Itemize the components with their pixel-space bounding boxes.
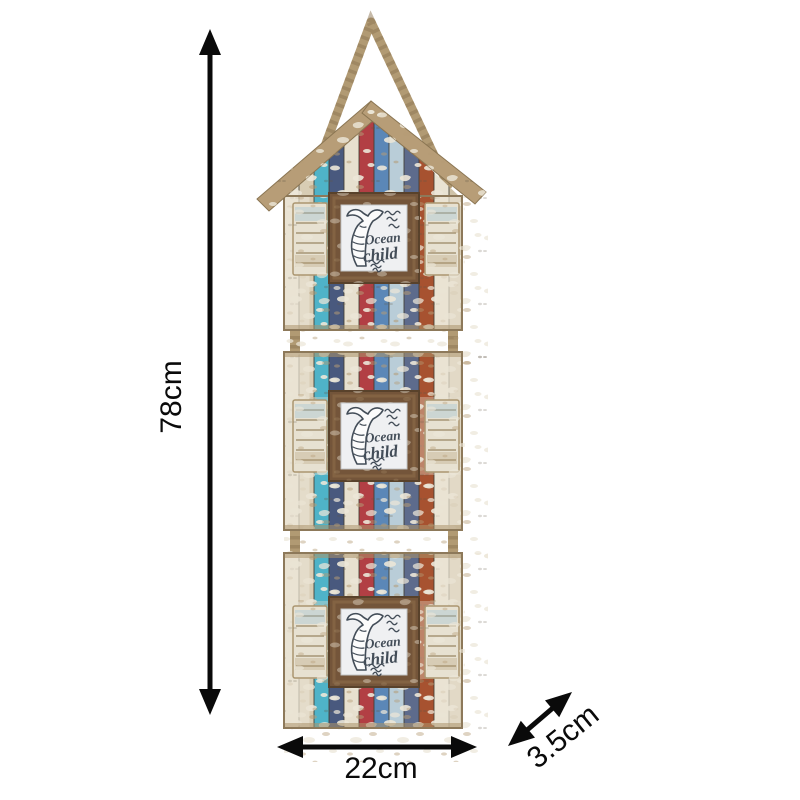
height-label: 78cm: [155, 360, 188, 433]
arrow-up-icon: [199, 29, 221, 55]
width-label: 22cm: [344, 752, 417, 785]
frame-bottom: [284, 553, 488, 762]
frame-middle: [284, 352, 488, 564]
photo-frame-middle: [329, 391, 419, 481]
product-dimension-diagram: Ocean child: [0, 0, 800, 800]
dimension-height: 78cm: [155, 29, 221, 715]
photo-frame-top: [329, 193, 419, 283]
frame-top-house: [257, 101, 488, 364]
arrow-down-icon: [199, 689, 221, 715]
product-illustration: Ocean child: [0, 0, 800, 800]
dimension-depth: 3.5cm: [508, 692, 605, 775]
photo-frame-bottom: [329, 597, 419, 687]
